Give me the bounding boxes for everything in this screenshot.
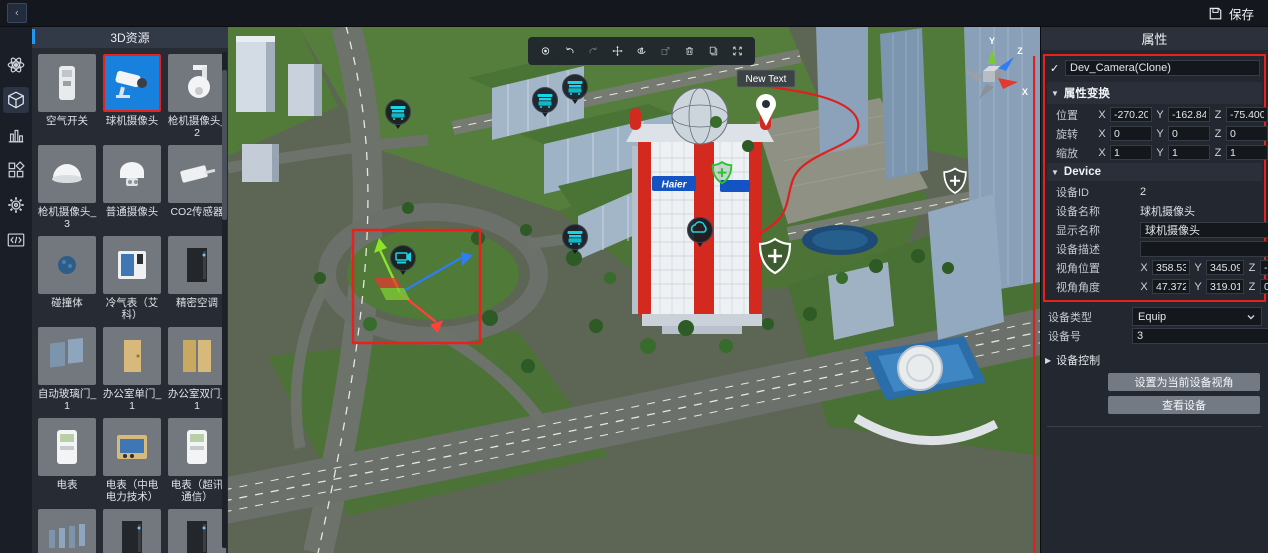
set-current-view-button[interactable]: 设置为当前设备视角 xyxy=(1108,373,1260,391)
back-chevron-icon xyxy=(14,7,20,19)
copy-icon xyxy=(708,42,719,60)
asset-item[interactable]: 办公室单门_1 xyxy=(101,327,163,412)
normal-camera-icon xyxy=(110,152,154,196)
asset-item-selected[interactable]: 球机摄像头 xyxy=(101,54,163,139)
asset-scrollbar[interactable] xyxy=(222,52,227,548)
electric-meter-icon xyxy=(175,425,219,469)
dome-camera-icon xyxy=(110,61,154,105)
collapse-arrow-icon: ▼ xyxy=(1051,168,1059,177)
rotate-tool-button[interactable] xyxy=(630,39,653,63)
asset-item[interactable]: 枪机摄像头_3 xyxy=(36,145,98,230)
properties-title: 属性 xyxy=(1141,29,1167,48)
view-angle-z-input[interactable] xyxy=(1260,279,1268,294)
device-name-value: 球机摄像头 xyxy=(1140,203,1195,219)
viewport-3d[interactable]: Haier xyxy=(228,26,1040,553)
asset-item[interactable]: 空气开关 xyxy=(36,54,98,139)
move-tool-button[interactable] xyxy=(606,39,629,63)
collapse-arrow-icon: ▼ xyxy=(1051,89,1059,98)
device-type-value: Equip xyxy=(1138,311,1166,323)
asset-item[interactable]: 闸机 xyxy=(36,509,98,553)
rotation-x-input[interactable] xyxy=(1110,126,1152,141)
cold-air-meter-icon xyxy=(110,243,154,287)
electric-meter-icon xyxy=(45,425,89,469)
asset-scroll-thumb[interactable] xyxy=(222,70,227,220)
trash-icon xyxy=(684,42,695,60)
device-control-label: 设备控制 xyxy=(1056,352,1100,368)
annotation-red-line xyxy=(1033,56,1035,553)
view-angle-row: 视角角度 X Y Z xyxy=(1049,278,1260,295)
scale-z-input[interactable] xyxy=(1226,145,1268,160)
single-door-icon xyxy=(110,334,154,378)
position-label: 位置 xyxy=(1056,107,1094,123)
asset-item[interactable]: 普通摄像头 xyxy=(101,145,163,230)
precision-ac-icon xyxy=(175,243,219,287)
sidebar-item-settings[interactable] xyxy=(3,192,29,218)
device-id-value: 2 xyxy=(1140,186,1146,198)
position-row: 位置 X Y Z xyxy=(1049,106,1260,123)
view-angle-y-input[interactable] xyxy=(1206,279,1244,294)
bullet-camera-icon xyxy=(45,152,89,196)
axis-x-label: X xyxy=(1022,87,1028,97)
code-icon xyxy=(6,230,26,250)
new-text-label: New Text xyxy=(746,74,787,85)
haier-tower: Haier xyxy=(626,88,774,334)
position-z-input[interactable] xyxy=(1226,107,1268,122)
properties-panel: 属性 ✓ ▼ 属性变换 位置 X Y Z 旋转 X Y Z 缩放 X Y Z xyxy=(1040,26,1268,553)
panel-accent-bar xyxy=(32,29,35,44)
view-pos-z-input[interactable] xyxy=(1260,260,1268,275)
device-name-row: 设备名称 球机摄像头 xyxy=(1049,202,1260,219)
electric-meter-icon xyxy=(110,425,154,469)
bullet-camera-icon xyxy=(175,61,219,105)
asset-item[interactable]: 枪机摄像头_2 xyxy=(166,54,228,139)
turnstile-icon xyxy=(45,516,89,553)
redo-icon xyxy=(588,42,599,60)
cabinet-icon xyxy=(175,516,219,553)
sidebar-item-code[interactable] xyxy=(3,227,29,253)
asset-item[interactable]: 列头柜_01 xyxy=(101,509,163,553)
scale-icon xyxy=(660,42,671,60)
rotate-icon xyxy=(636,42,647,60)
transform-section-title: 属性变换 xyxy=(1064,85,1110,101)
panel-divider xyxy=(1047,426,1262,427)
collapsed-arrow-icon: ▶ xyxy=(1045,356,1051,365)
asset-item[interactable]: CO2传感器 xyxy=(166,145,228,230)
object-name-row: ✓ xyxy=(1050,60,1260,76)
gear-icon xyxy=(6,195,26,215)
scale-label: 缩放 xyxy=(1056,145,1094,161)
asset-item[interactable]: 办公室双门_1 xyxy=(166,327,228,412)
asset-item[interactable]: 列头柜_02 xyxy=(166,509,228,553)
asset-item[interactable]: 自动玻璃门_1 xyxy=(36,327,98,412)
device-desc-row: 设备描述 xyxy=(1049,240,1260,257)
bar-chart-icon xyxy=(6,125,26,145)
co2-sensor-icon xyxy=(175,152,219,196)
device-no-input[interactable] xyxy=(1132,328,1268,344)
rotation-y-input[interactable] xyxy=(1168,126,1210,141)
view-pos-y-input[interactable] xyxy=(1206,260,1244,275)
asset-panel: 3D资源 空气开关 球机摄像头 枪机摄像头_2 枪机摄像头_3 普通摄像头 CO… xyxy=(32,26,228,553)
sidebar-item-scene[interactable] xyxy=(3,52,29,78)
transform-section-header[interactable]: ▼ 属性变换 xyxy=(1047,82,1262,104)
object-name-input[interactable] xyxy=(1065,60,1260,76)
asset-item[interactable]: 电表（中电电力技术） xyxy=(101,418,163,503)
active-checkbox[interactable]: ✓ xyxy=(1050,62,1060,75)
undo-icon xyxy=(564,42,575,60)
asset-item[interactable]: 电表 xyxy=(36,418,98,503)
cabinet-icon xyxy=(110,516,154,553)
asset-item[interactable]: 冷气表（艾科） xyxy=(101,236,163,321)
scale-x-input[interactable] xyxy=(1110,145,1152,160)
sidebar-item-3d-resources[interactable] xyxy=(3,87,29,113)
chevron-down-icon xyxy=(1246,312,1256,322)
axis-y-label: Y xyxy=(989,36,995,46)
asset-item[interactable]: 精密空调 xyxy=(166,236,228,321)
display-name-input[interactable] xyxy=(1140,222,1268,238)
scale-tool-button[interactable] xyxy=(654,39,677,63)
asset-item[interactable]: 电表（超讯通信） xyxy=(166,418,228,503)
display-name-row: 显示名称 xyxy=(1049,221,1260,238)
sidebar-item-components[interactable] xyxy=(3,157,29,183)
rotation-label: 旋转 xyxy=(1056,126,1094,142)
fullscreen-button[interactable] xyxy=(726,39,749,63)
cube-icon xyxy=(6,90,26,110)
position-y-input[interactable] xyxy=(1168,107,1210,122)
view-device-button[interactable]: 查看设备 xyxy=(1108,396,1260,414)
view-position-row: 视角位置 X Y Z xyxy=(1049,259,1260,276)
move-icon xyxy=(612,42,623,60)
undo-button[interactable] xyxy=(558,39,581,63)
rotation-z-input[interactable] xyxy=(1226,126,1268,141)
device-id-row: 设备ID 2 xyxy=(1049,183,1260,200)
device-type-select[interactable]: Equip xyxy=(1132,307,1262,326)
focus-tool-button[interactable] xyxy=(534,39,557,63)
back-button[interactable] xyxy=(7,3,27,23)
rotation-row: 旋转 X Y Z xyxy=(1049,125,1260,142)
scale-y-input[interactable] xyxy=(1168,145,1210,160)
asset-grid: 空气开关 球机摄像头 枪机摄像头_2 枪机摄像头_3 普通摄像头 CO2传感器 … xyxy=(32,48,228,553)
blocks-icon xyxy=(6,160,26,180)
asset-item[interactable]: 碰撞体 xyxy=(36,236,98,321)
asset-panel-title: 3D资源 xyxy=(110,29,149,46)
device-section-header[interactable]: ▼ Device xyxy=(1047,163,1262,181)
position-x-input[interactable] xyxy=(1110,107,1152,122)
device-control-section[interactable]: ▶ 设备控制 xyxy=(1041,352,1268,368)
focus-icon xyxy=(540,42,551,60)
device-type-row: 设备类型 Equip xyxy=(1041,308,1268,325)
viewport-toolbar xyxy=(528,37,755,65)
properties-panel-header: 属性 xyxy=(1041,26,1268,50)
duplicate-button[interactable] xyxy=(702,39,725,63)
annotated-property-group: ✓ ▼ 属性变换 位置 X Y Z 旋转 X Y Z 缩放 X Y Z ▼ De… xyxy=(1043,54,1266,302)
device-desc-input[interactable] xyxy=(1140,241,1268,257)
scale-row: 缩放 X Y Z xyxy=(1049,144,1260,161)
atom-icon xyxy=(6,55,26,75)
delete-button[interactable] xyxy=(678,39,701,63)
asset-panel-header: 3D资源 xyxy=(32,26,228,48)
fullscreen-icon xyxy=(732,42,743,60)
haier-sign-text: Haier xyxy=(661,180,687,191)
scene-canvas: Haier xyxy=(228,26,1040,553)
save-icon xyxy=(1208,6,1223,21)
left-icon-rail xyxy=(0,26,32,553)
save-button[interactable]: 保存 xyxy=(1202,2,1260,24)
axis-z-label: Z xyxy=(1017,46,1023,56)
air-switch-icon xyxy=(45,61,89,105)
redo-button[interactable] xyxy=(582,39,605,63)
collider-icon xyxy=(45,243,89,287)
view-pos-x-input[interactable] xyxy=(1152,260,1190,275)
device-section-title: Device xyxy=(1064,166,1101,178)
top-bar: 保存 xyxy=(0,0,1268,27)
sidebar-item-statistics[interactable] xyxy=(3,122,29,148)
device-no-row: 设备号 xyxy=(1041,327,1268,344)
view-angle-x-input[interactable] xyxy=(1152,279,1190,294)
glass-door-icon xyxy=(45,334,89,378)
save-label: 保存 xyxy=(1229,4,1254,23)
double-door-icon xyxy=(175,334,219,378)
